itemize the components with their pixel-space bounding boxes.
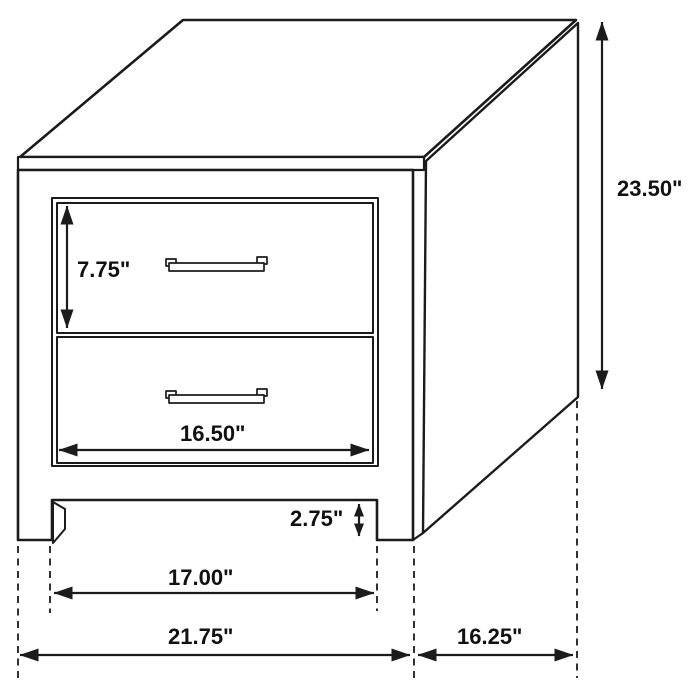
overall-width-label: 21.75" [168, 624, 233, 649]
side-depth-label: 16.25" [457, 624, 522, 649]
leg-span-label: 17.00" [168, 565, 233, 590]
overall-height-label: 23.50" [617, 176, 682, 201]
base-clearance-label: 2.75" [290, 506, 343, 531]
right-leg-side-edge [413, 533, 423, 540]
handle-bar [169, 395, 264, 403]
tabletop-front-edge [18, 157, 424, 170]
drawer-height-label: 7.75" [77, 257, 130, 282]
nightstand-dimension-diagram: 7.75" 23.50" 16.50" 2.75" 17.00" 21.75" … [0, 0, 700, 700]
drawer-width-label: 16.50" [180, 421, 245, 446]
furniture-diagram-canvas: 7.75" 23.50" 16.50" 2.75" 17.00" 21.75" … [0, 0, 700, 700]
handle-bar [169, 263, 264, 271]
left-leg-side-face [53, 502, 65, 543]
